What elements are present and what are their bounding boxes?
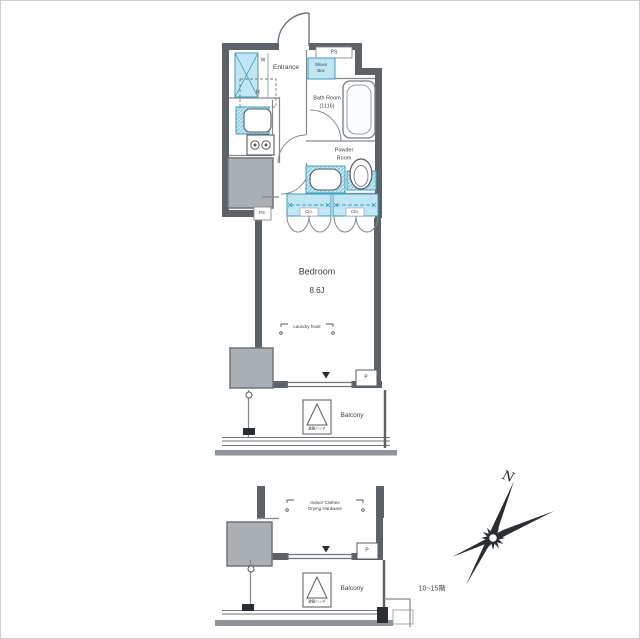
washer-label: W bbox=[261, 59, 266, 64]
vanity-sink bbox=[306, 166, 345, 193]
powder-room-label-2: Room bbox=[337, 156, 352, 162]
closet-left-label: Clo. bbox=[305, 210, 313, 215]
upper-plan bbox=[215, 13, 397, 456]
window-marker-lower bbox=[322, 546, 330, 553]
bath-room-label-1: Bath Room bbox=[313, 96, 341, 102]
balcony-window-lower bbox=[288, 553, 352, 560]
closet-right-label: Clo. bbox=[351, 210, 359, 215]
ps-top-label: PS bbox=[331, 51, 338, 56]
stove-icon bbox=[247, 135, 274, 155]
refrigerator-label: R bbox=[256, 90, 260, 96]
bedroom-size-label: 8.6J bbox=[309, 287, 324, 295]
shoes-box-label-2: Box bbox=[317, 69, 324, 73]
pipe-label-lower: P bbox=[365, 549, 368, 554]
balcony-label-upper: Balcony bbox=[340, 413, 363, 420]
floorplan-canvas: Entrance PS Shoes Box W R Bath Room (111… bbox=[0, 0, 640, 639]
column-lower bbox=[227, 522, 272, 566]
floor-range-label: 10~15階 bbox=[419, 586, 446, 593]
laundry-hook-label: Laundry hook bbox=[293, 325, 320, 330]
column-upper-bottom bbox=[230, 348, 273, 388]
powder-room-label-1: Powder bbox=[335, 148, 354, 154]
window-marker-upper bbox=[322, 372, 330, 379]
closets bbox=[287, 194, 378, 232]
balcony-window-upper bbox=[287, 381, 352, 388]
balcony-upper bbox=[215, 390, 397, 456]
evac-hatch-label-lower: 避難ハッチ bbox=[308, 600, 326, 604]
ps-mid-label: PS bbox=[259, 211, 265, 216]
bath-room-label-2: (1116) bbox=[319, 104, 334, 110]
entrance-label: Entrance bbox=[273, 65, 299, 72]
kitchen-sink bbox=[236, 107, 271, 134]
evac-hatch-label-upper: 避難ハッチ bbox=[308, 427, 326, 431]
entrance-door-arc bbox=[278, 13, 309, 46]
bedroom-label: Bedroom bbox=[299, 268, 336, 277]
balcony-label-lower: Balcony bbox=[340, 586, 363, 593]
compass-rose bbox=[452, 481, 554, 585]
balcony-lower bbox=[215, 560, 413, 627]
toilet-icon bbox=[347, 159, 376, 190]
shoes-box-label-1: Shoes bbox=[315, 63, 327, 67]
column-upper-mid bbox=[228, 158, 273, 208]
drying-label-1: Indoor Clothes bbox=[310, 501, 339, 506]
bathtub bbox=[343, 81, 375, 138]
pipe-label-upper: P bbox=[364, 376, 367, 381]
drying-label-2: Drying Hardware bbox=[308, 507, 342, 512]
